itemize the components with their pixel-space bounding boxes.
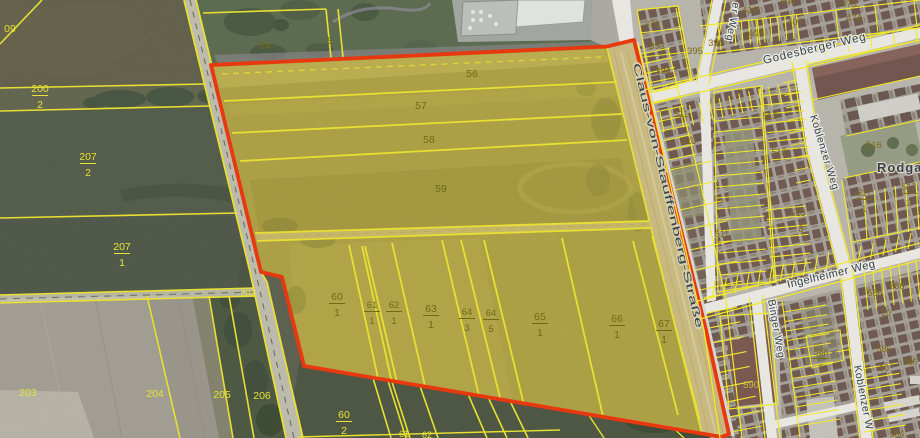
svg-text:408: 408 [780,0,796,7]
svg-text:202: 202 [241,288,255,298]
svg-text:407: 407 [787,17,803,28]
svg-text:1: 1 [391,316,396,327]
svg-text:516: 516 [866,140,882,151]
svg-text:1: 1 [334,307,340,319]
svg-text:64: 64 [486,308,497,319]
svg-text:2: 2 [341,425,347,437]
svg-text:513: 513 [762,111,777,121]
svg-text:511: 511 [715,229,729,239]
svg-text:60: 60 [331,291,343,303]
svg-text:513: 513 [681,136,696,146]
svg-text:10: 10 [879,363,889,373]
svg-text:586: 586 [867,288,882,298]
svg-text:2: 2 [906,198,911,208]
svg-text:373: 373 [644,19,660,30]
svg-text:395: 395 [687,46,703,57]
svg-text:5: 5 [488,324,493,335]
svg-text:409: 409 [748,28,764,39]
svg-text:54: 54 [259,40,271,52]
svg-text:1: 1 [818,363,823,373]
svg-text:1: 1 [428,319,434,331]
svg-text:396: 396 [708,38,724,49]
svg-text:8: 8 [798,224,803,234]
svg-text:393: 393 [649,41,665,52]
svg-text:60: 60 [338,409,350,421]
svg-text:203: 203 [19,387,37,399]
svg-text:8: 8 [327,35,333,47]
svg-text:62: 62 [422,430,432,438]
svg-text:1: 1 [119,257,125,269]
svg-text:1: 1 [861,204,866,214]
svg-text:1: 1 [537,327,543,339]
svg-text:204: 204 [146,388,164,400]
svg-text:586: 586 [902,357,917,367]
svg-text:207: 207 [113,241,131,253]
svg-text:517: 517 [901,182,916,192]
svg-text:473: 473 [841,0,857,10]
svg-text:590: 590 [743,380,759,391]
svg-text:410: 410 [742,5,758,16]
svg-text:474: 474 [846,13,862,24]
svg-text:205: 205 [213,389,231,401]
svg-text:Rodgau: Rodgau [877,160,920,175]
svg-text:65: 65 [534,311,546,323]
svg-text:511: 511 [674,109,688,119]
svg-text:67: 67 [658,318,670,330]
svg-text:58: 58 [423,134,435,146]
svg-text:3: 3 [464,323,469,334]
svg-text:63: 63 [425,303,437,315]
svg-text:1: 1 [614,329,620,341]
svg-text:56: 56 [466,68,478,80]
svg-text:2: 2 [85,167,91,179]
svg-text:64: 64 [462,307,473,318]
svg-text:1: 1 [661,334,667,346]
svg-text:586: 586 [876,344,891,354]
svg-text:61: 61 [399,429,409,438]
svg-text:513: 513 [790,208,805,218]
svg-text:588: 588 [813,347,828,357]
svg-text:66: 66 [611,313,623,325]
svg-text:206: 206 [253,390,271,402]
svg-text:512: 512 [771,147,786,157]
svg-text:10: 10 [881,308,891,318]
svg-text:59: 59 [435,183,447,195]
svg-text:517: 517 [856,188,871,198]
svg-text:57: 57 [415,100,427,112]
svg-text:200: 200 [31,83,49,95]
svg-text:207: 207 [79,151,97,163]
svg-text:586: 586 [889,281,904,291]
svg-text:61: 61 [367,300,378,311]
svg-text:394: 394 [655,66,671,77]
svg-text:1: 1 [369,316,374,327]
svg-text:2: 2 [37,99,43,111]
svg-text:62: 62 [389,300,400,311]
svg-text:09: 09 [4,23,16,35]
svg-text:584: 584 [889,429,904,438]
